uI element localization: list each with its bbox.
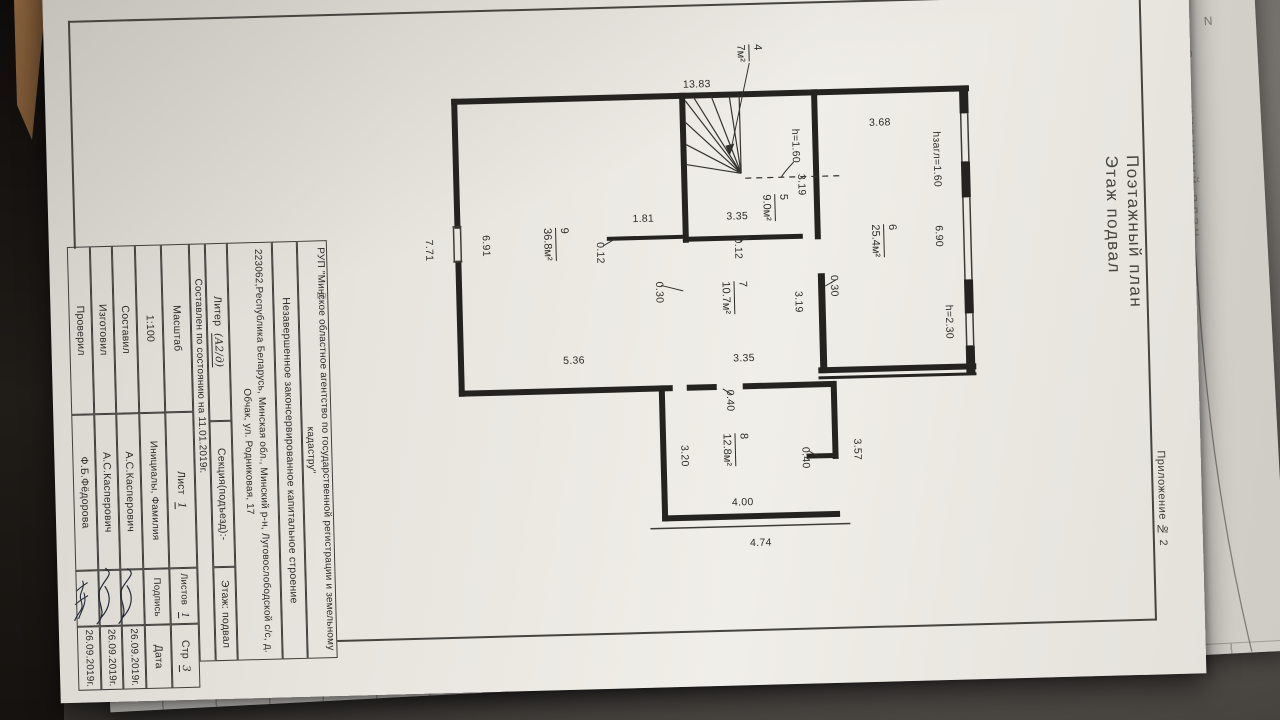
scale-label-cell: Масштаб <box>161 244 193 413</box>
liter-label: Литер <box>211 296 224 326</box>
initials-header-cell: Инициалы, Фамилия <box>139 412 169 569</box>
leader-lines <box>598 61 840 463</box>
page-label: Стр <box>179 639 191 658</box>
sheet-label: Лист <box>175 471 188 495</box>
name-cell: А.С.Касперович <box>116 413 143 570</box>
role-cell: Проверил <box>67 246 94 415</box>
role-cell: Изготовил <box>90 246 116 415</box>
page-value: 3 <box>180 665 192 672</box>
name-cell: А.С.Касперович <box>94 414 120 571</box>
sheets-label: Листов <box>178 573 190 605</box>
page-cell: Стр 3 <box>171 624 201 689</box>
sheets-value: 1 <box>179 612 190 619</box>
section-cell: Секция(подъезд):- <box>209 421 235 568</box>
photo-scene: Ситуационный план N Поэтажный план Этаж … <box>0 0 1280 720</box>
stairs <box>685 95 741 174</box>
signature-scribble <box>67 566 105 629</box>
scale-value-cell: 1:100 <box>135 245 165 414</box>
document-sheet: Поэтажный план Этаж подвал Приложение № … <box>0 0 1280 720</box>
sheets-cell: Листов 1 <box>169 568 198 625</box>
date-cell: 26.09.2019г. <box>100 626 124 691</box>
date-cell: 26.09.2019г. <box>77 626 102 691</box>
dashed-height-line <box>745 176 841 179</box>
sheet-cell: Лист 1 <box>165 412 197 569</box>
role-cell: Составил <box>112 245 139 414</box>
date-cell: 26.09.2019г. <box>122 625 147 690</box>
floor-cell: Этаж: подвал <box>213 567 237 662</box>
liter-value: (А2/д) <box>212 333 225 368</box>
sheet-value: 1 <box>176 502 188 509</box>
date-header-cell: Дата <box>145 624 173 689</box>
walls <box>451 85 980 526</box>
name-cell: Ф.Б.Фёдорова <box>71 414 98 571</box>
window-lines <box>450 113 978 533</box>
